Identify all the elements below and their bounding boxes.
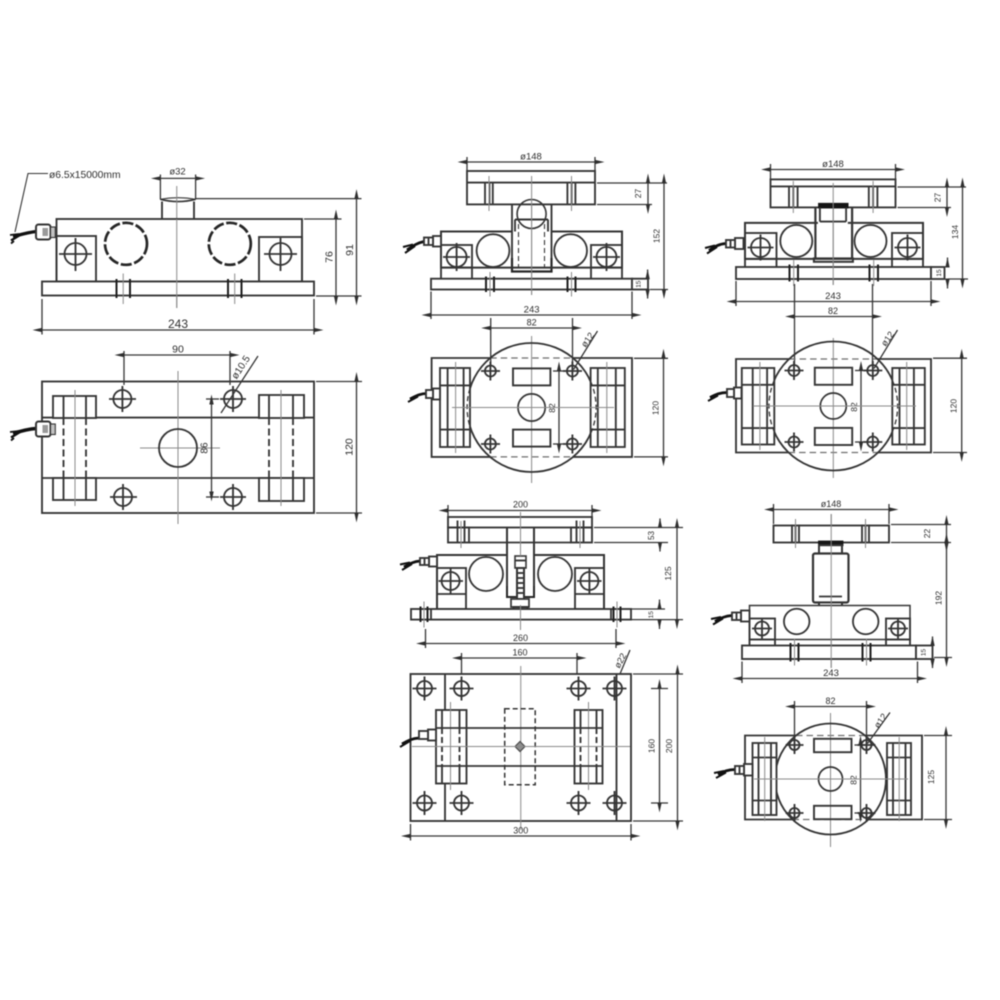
svg-text:120: 120	[651, 401, 661, 415]
svg-text:15: 15	[636, 280, 643, 288]
svg-text:15: 15	[936, 269, 943, 277]
svg-text:ø22: ø22	[612, 651, 628, 669]
svg-text:120: 120	[344, 438, 356, 456]
svg-text:125: 125	[926, 770, 936, 784]
svg-text:ø148: ø148	[520, 152, 542, 163]
svg-text:ø12: ø12	[872, 712, 889, 730]
svg-text:91: 91	[344, 244, 356, 256]
svg-text:243: 243	[825, 291, 841, 302]
svg-text:15: 15	[921, 649, 928, 657]
svg-text:ø148: ø148	[821, 499, 842, 509]
svg-text:82: 82	[849, 402, 859, 412]
svg-text:ø148: ø148	[822, 159, 844, 170]
svg-text:ø12: ø12	[879, 330, 896, 348]
svg-text:300: 300	[513, 826, 528, 836]
svg-text:82: 82	[828, 306, 838, 316]
svg-text:243: 243	[168, 317, 188, 331]
svg-text:243: 243	[524, 305, 540, 316]
svg-text:120: 120	[949, 399, 959, 413]
svg-text:200: 200	[513, 500, 528, 510]
svg-text:86: 86	[200, 442, 211, 454]
svg-text:82: 82	[825, 696, 835, 706]
svg-text:53: 53	[647, 531, 656, 540]
svg-text:192: 192	[934, 591, 944, 605]
svg-text:260: 260	[513, 633, 528, 643]
svg-text:ø10.5: ø10.5	[230, 354, 253, 382]
svg-text:125: 125	[663, 566, 673, 580]
svg-text:ø12: ø12	[579, 331, 596, 349]
svg-text:152: 152	[652, 229, 662, 243]
svg-text:ø32: ø32	[169, 167, 185, 178]
svg-text:243: 243	[823, 668, 839, 679]
svg-text:27: 27	[933, 193, 943, 203]
svg-text:160: 160	[512, 648, 527, 658]
svg-text:160: 160	[647, 739, 657, 753]
svg-text:15: 15	[648, 611, 655, 619]
svg-text:134: 134	[950, 225, 960, 239]
svg-text:ø6.5x15000mm: ø6.5x15000mm	[49, 170, 121, 181]
svg-text:82: 82	[527, 318, 537, 328]
svg-text:76: 76	[324, 251, 336, 263]
svg-text:27: 27	[633, 189, 643, 199]
svg-text:90: 90	[172, 344, 184, 356]
svg-text:22: 22	[922, 529, 932, 539]
svg-text:82: 82	[849, 775, 859, 785]
svg-text:200: 200	[664, 739, 674, 753]
